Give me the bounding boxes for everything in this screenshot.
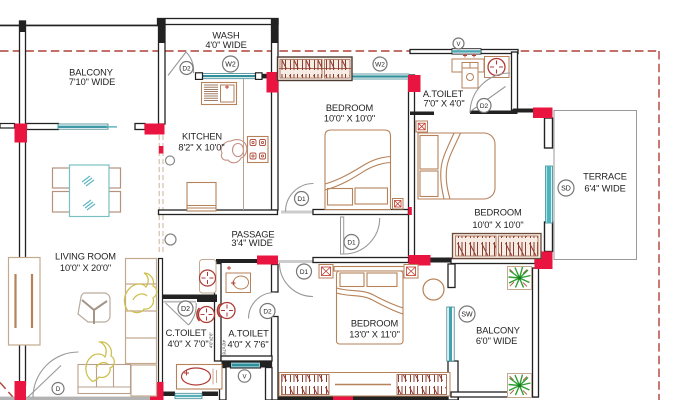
- svg-text:7'10" WIDE: 7'10" WIDE: [69, 77, 115, 87]
- svg-text:A.TOILET: A.TOILET: [228, 329, 269, 339]
- svg-text:3'4" WIDE: 3'4" WIDE: [231, 238, 272, 248]
- svg-text:8'2" X 10'0": 8'2" X 10'0": [178, 143, 224, 153]
- svg-text:D1: D1: [300, 269, 309, 276]
- svg-text:BEDROOM: BEDROOM: [474, 208, 521, 218]
- svg-text:4'0"x7'6": 4'0"x7'6": [222, 340, 227, 356]
- svg-text:D2: D2: [480, 103, 489, 110]
- svg-text:D2: D2: [181, 306, 190, 313]
- svg-text:D1: D1: [297, 196, 306, 203]
- svg-text:BALCONY: BALCONY: [476, 326, 520, 336]
- svg-text:W2: W2: [225, 62, 236, 69]
- svg-text:D1: D1: [347, 240, 356, 247]
- svg-text:D2: D2: [263, 309, 272, 316]
- svg-text:W2: W2: [375, 62, 385, 69]
- svg-text:BEDROOM: BEDROOM: [326, 103, 373, 113]
- svg-text:4'0" X 7'6": 4'0" X 7'6": [227, 340, 268, 350]
- svg-text:10'0" X 10'0": 10'0" X 10'0": [472, 220, 523, 230]
- svg-text:WASH: WASH: [212, 30, 239, 40]
- svg-text:LIVING ROOM: LIVING ROOM: [55, 252, 116, 262]
- svg-text:TERRACE: TERRACE: [583, 171, 627, 181]
- svg-text:6'0" WIDE: 6'0" WIDE: [476, 336, 517, 346]
- svg-text:13'0" X 11'0": 13'0" X 11'0": [349, 330, 400, 340]
- svg-text:D: D: [56, 387, 61, 393]
- svg-text:10'0" X 20'0": 10'0" X 20'0": [60, 263, 111, 273]
- svg-text:D2: D2: [182, 66, 191, 73]
- svg-text:7'0" X 4'0": 7'0" X 4'0": [423, 99, 464, 109]
- svg-text:BEDROOM: BEDROOM: [351, 319, 398, 329]
- svg-text:BALCONY: BALCONY: [69, 68, 113, 78]
- svg-text:4'0" WIDE: 4'0" WIDE: [205, 40, 246, 50]
- svg-text:V: V: [242, 375, 246, 381]
- svg-text:SD: SD: [561, 186, 571, 193]
- svg-text:6'4" WIDE: 6'4" WIDE: [584, 184, 625, 194]
- svg-text:KITCHEN: KITCHEN: [182, 132, 222, 142]
- svg-text:SW: SW: [461, 312, 473, 319]
- svg-text:A.TOILET: A.TOILET: [423, 89, 464, 99]
- svg-text:4'0"x2'6": 4'0"x2'6": [209, 332, 214, 348]
- svg-text:V: V: [456, 42, 460, 48]
- svg-text:C.TOILET: C.TOILET: [166, 328, 207, 338]
- svg-text:10'0" X 10'0": 10'0" X 10'0": [324, 114, 375, 124]
- svg-text:4'0" X 7'0": 4'0" X 7'0": [167, 339, 208, 349]
